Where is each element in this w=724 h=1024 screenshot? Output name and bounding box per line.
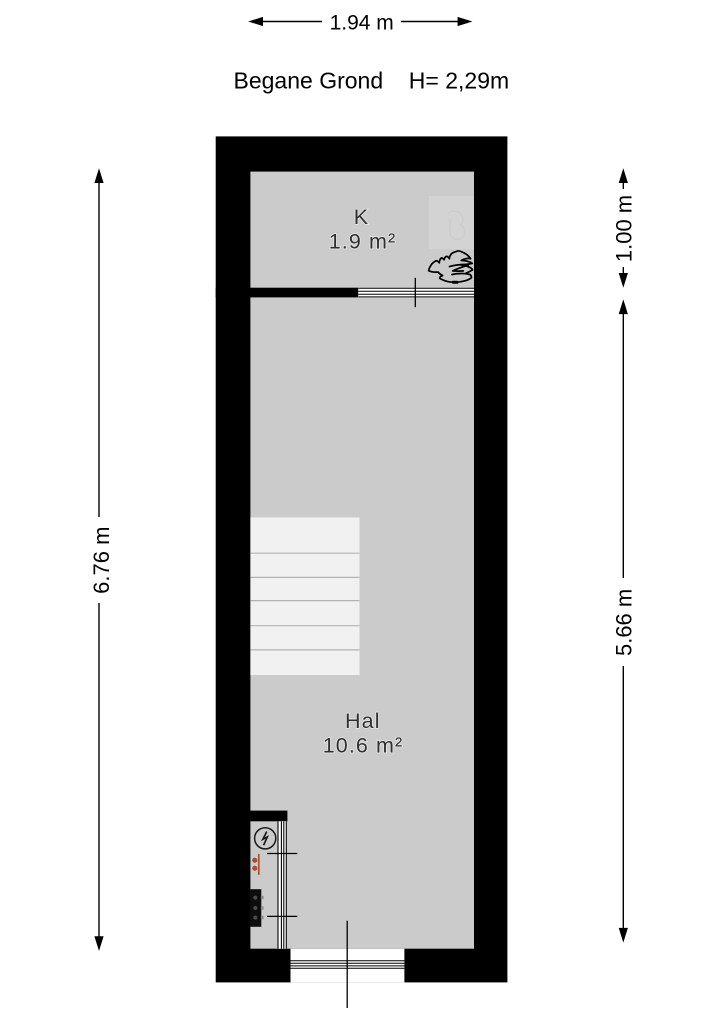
svg-text:5.66 m: 5.66 m xyxy=(611,589,636,656)
svg-text:Begane Grond: Begane Grond xyxy=(234,68,384,94)
svg-text:1.00 m: 1.00 m xyxy=(611,195,636,262)
svg-text:6.76 m: 6.76 m xyxy=(89,527,114,594)
svg-text:1.94 m: 1.94 m xyxy=(330,11,394,34)
svg-text:H= 2,29m: H= 2,29m xyxy=(409,68,509,94)
svg-text:K: K xyxy=(354,205,369,229)
svg-text:Hal: Hal xyxy=(345,709,381,733)
svg-text:1.9 m²: 1.9 m² xyxy=(329,229,397,253)
svg-text:10.6 m²: 10.6 m² xyxy=(323,734,404,758)
